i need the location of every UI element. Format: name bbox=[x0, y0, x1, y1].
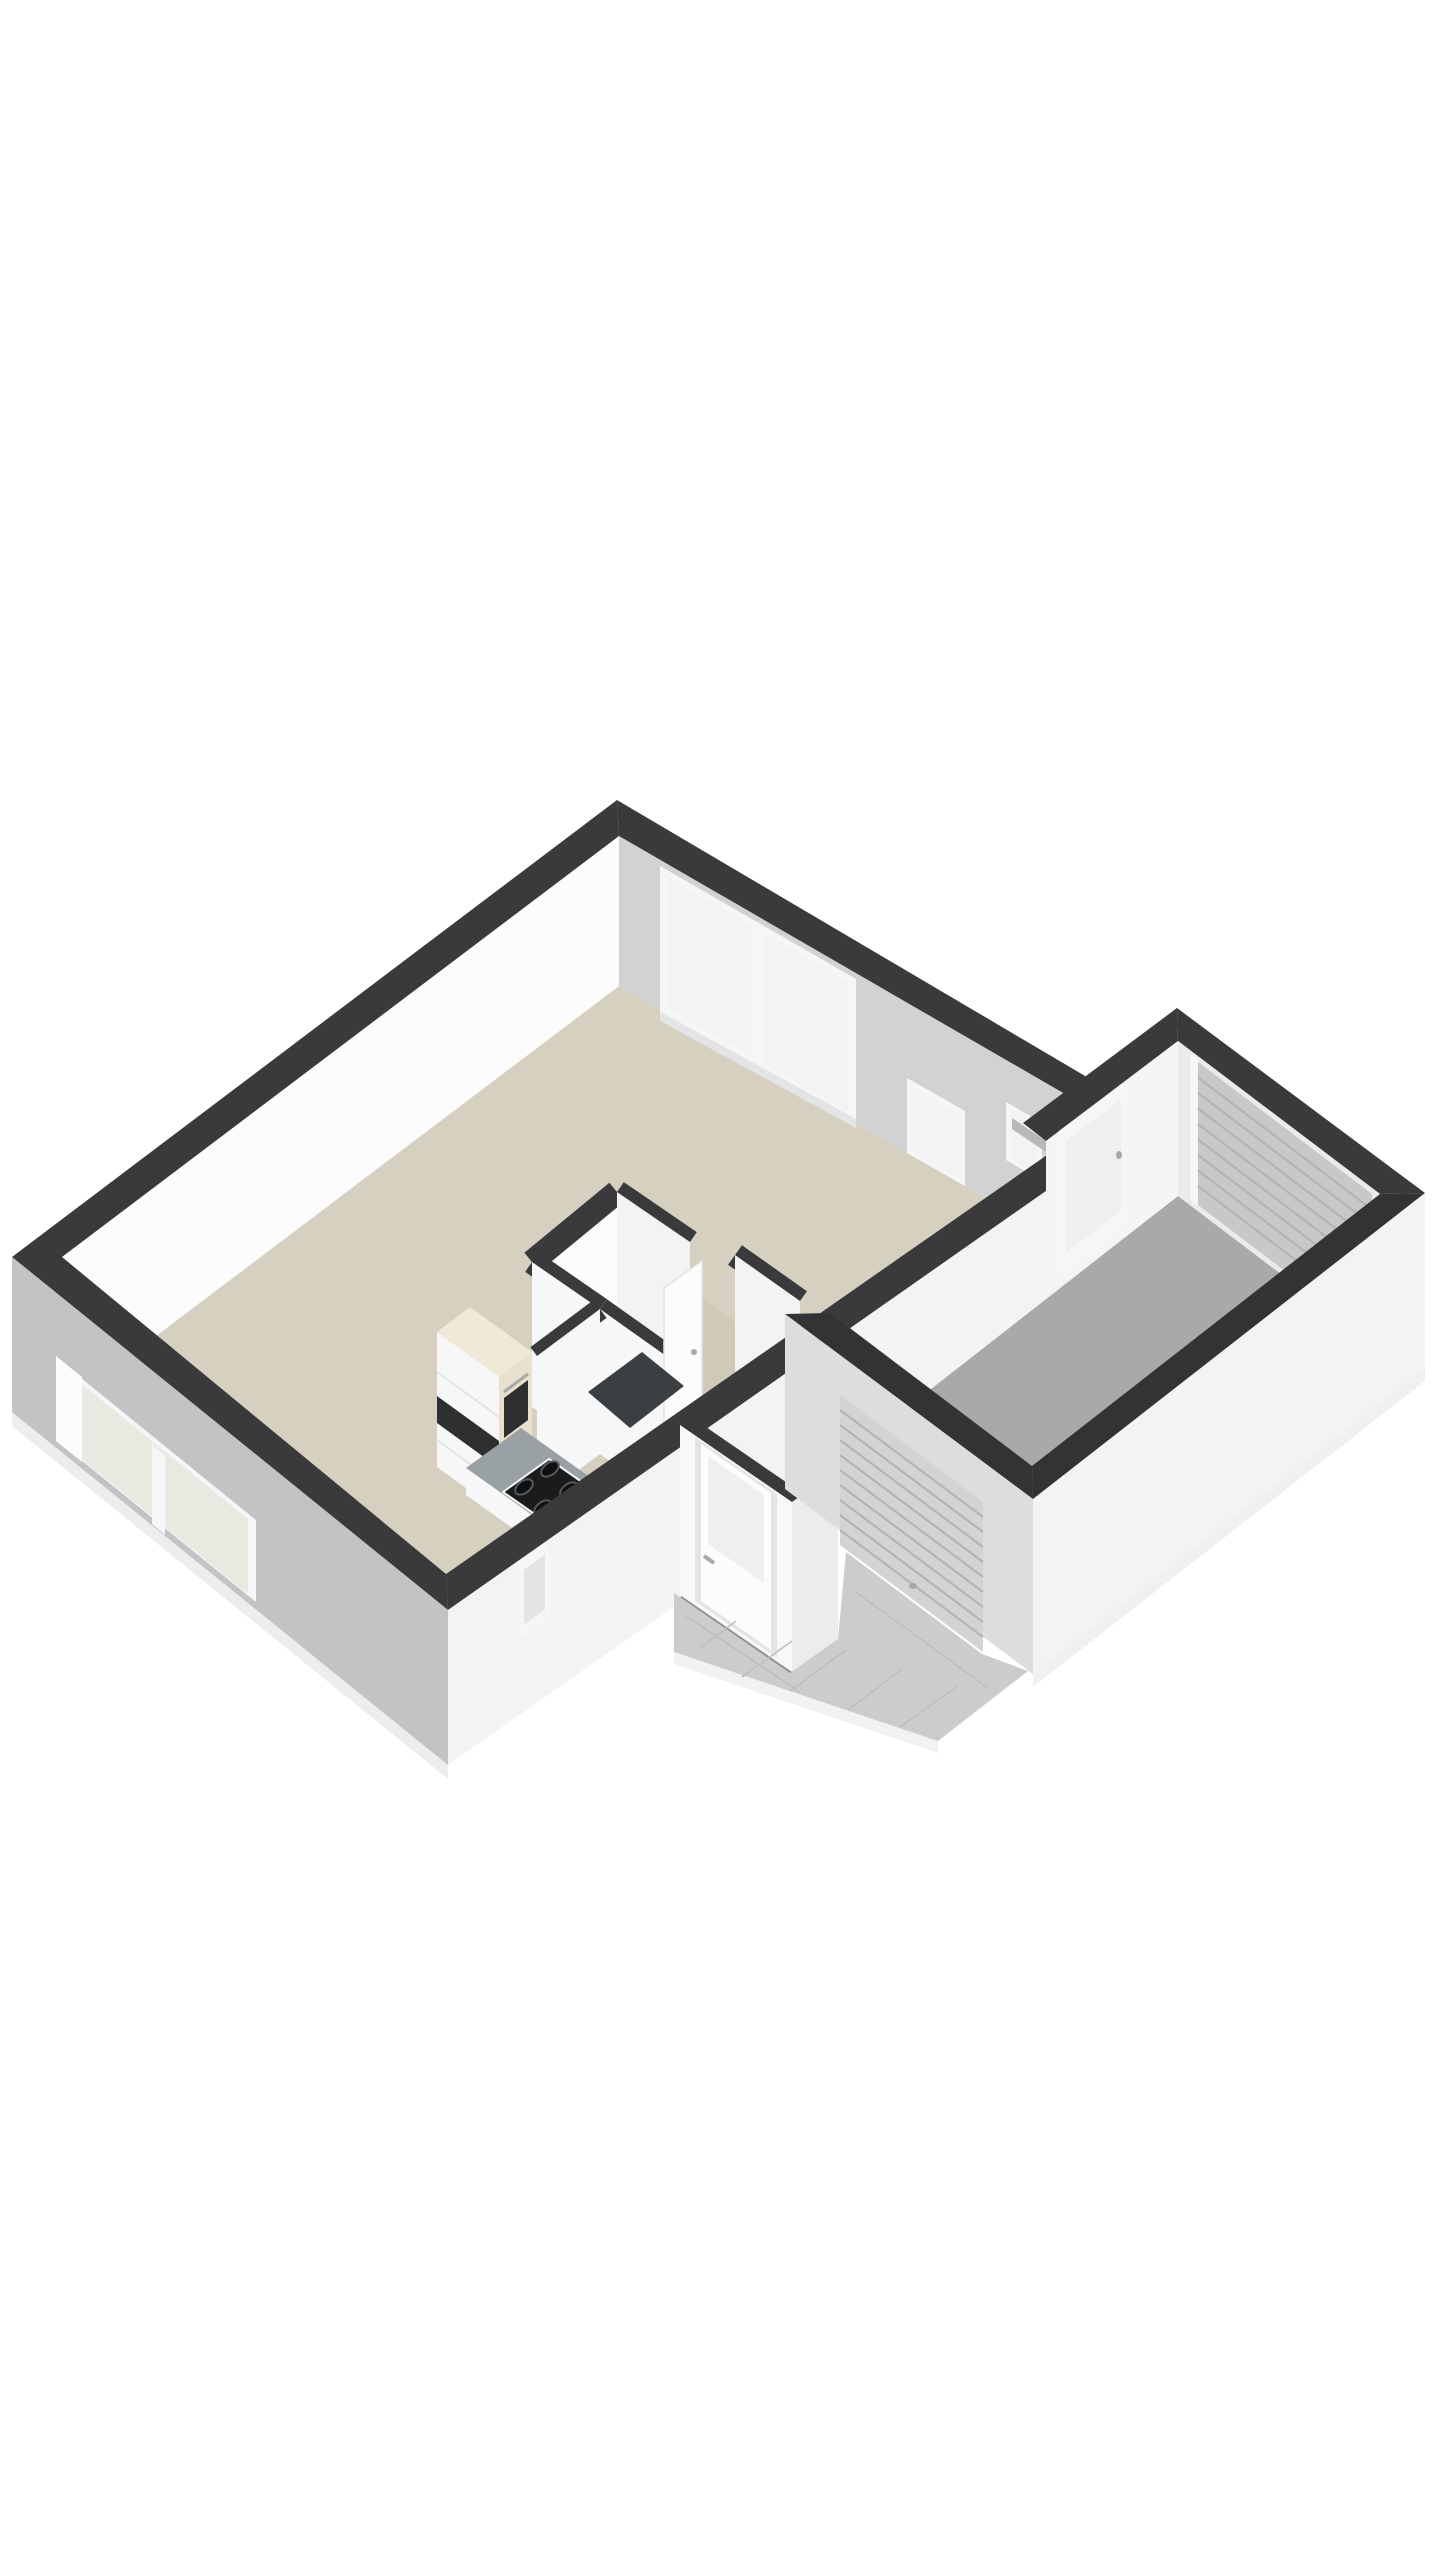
side-wall-window-mullion bbox=[152, 1445, 165, 1535]
hall-door-handle bbox=[691, 1349, 697, 1355]
floorplan-3d-render bbox=[0, 0, 1440, 2560]
garage-side-door-handle bbox=[1116, 1151, 1122, 1159]
living-room-window-large-mullion bbox=[752, 921, 766, 1066]
garage-roller-door-front-handle bbox=[909, 1583, 917, 1589]
garage-roller-rear-rail bbox=[1190, 1053, 1198, 1206]
floorplan-viewport bbox=[0, 0, 1440, 2560]
